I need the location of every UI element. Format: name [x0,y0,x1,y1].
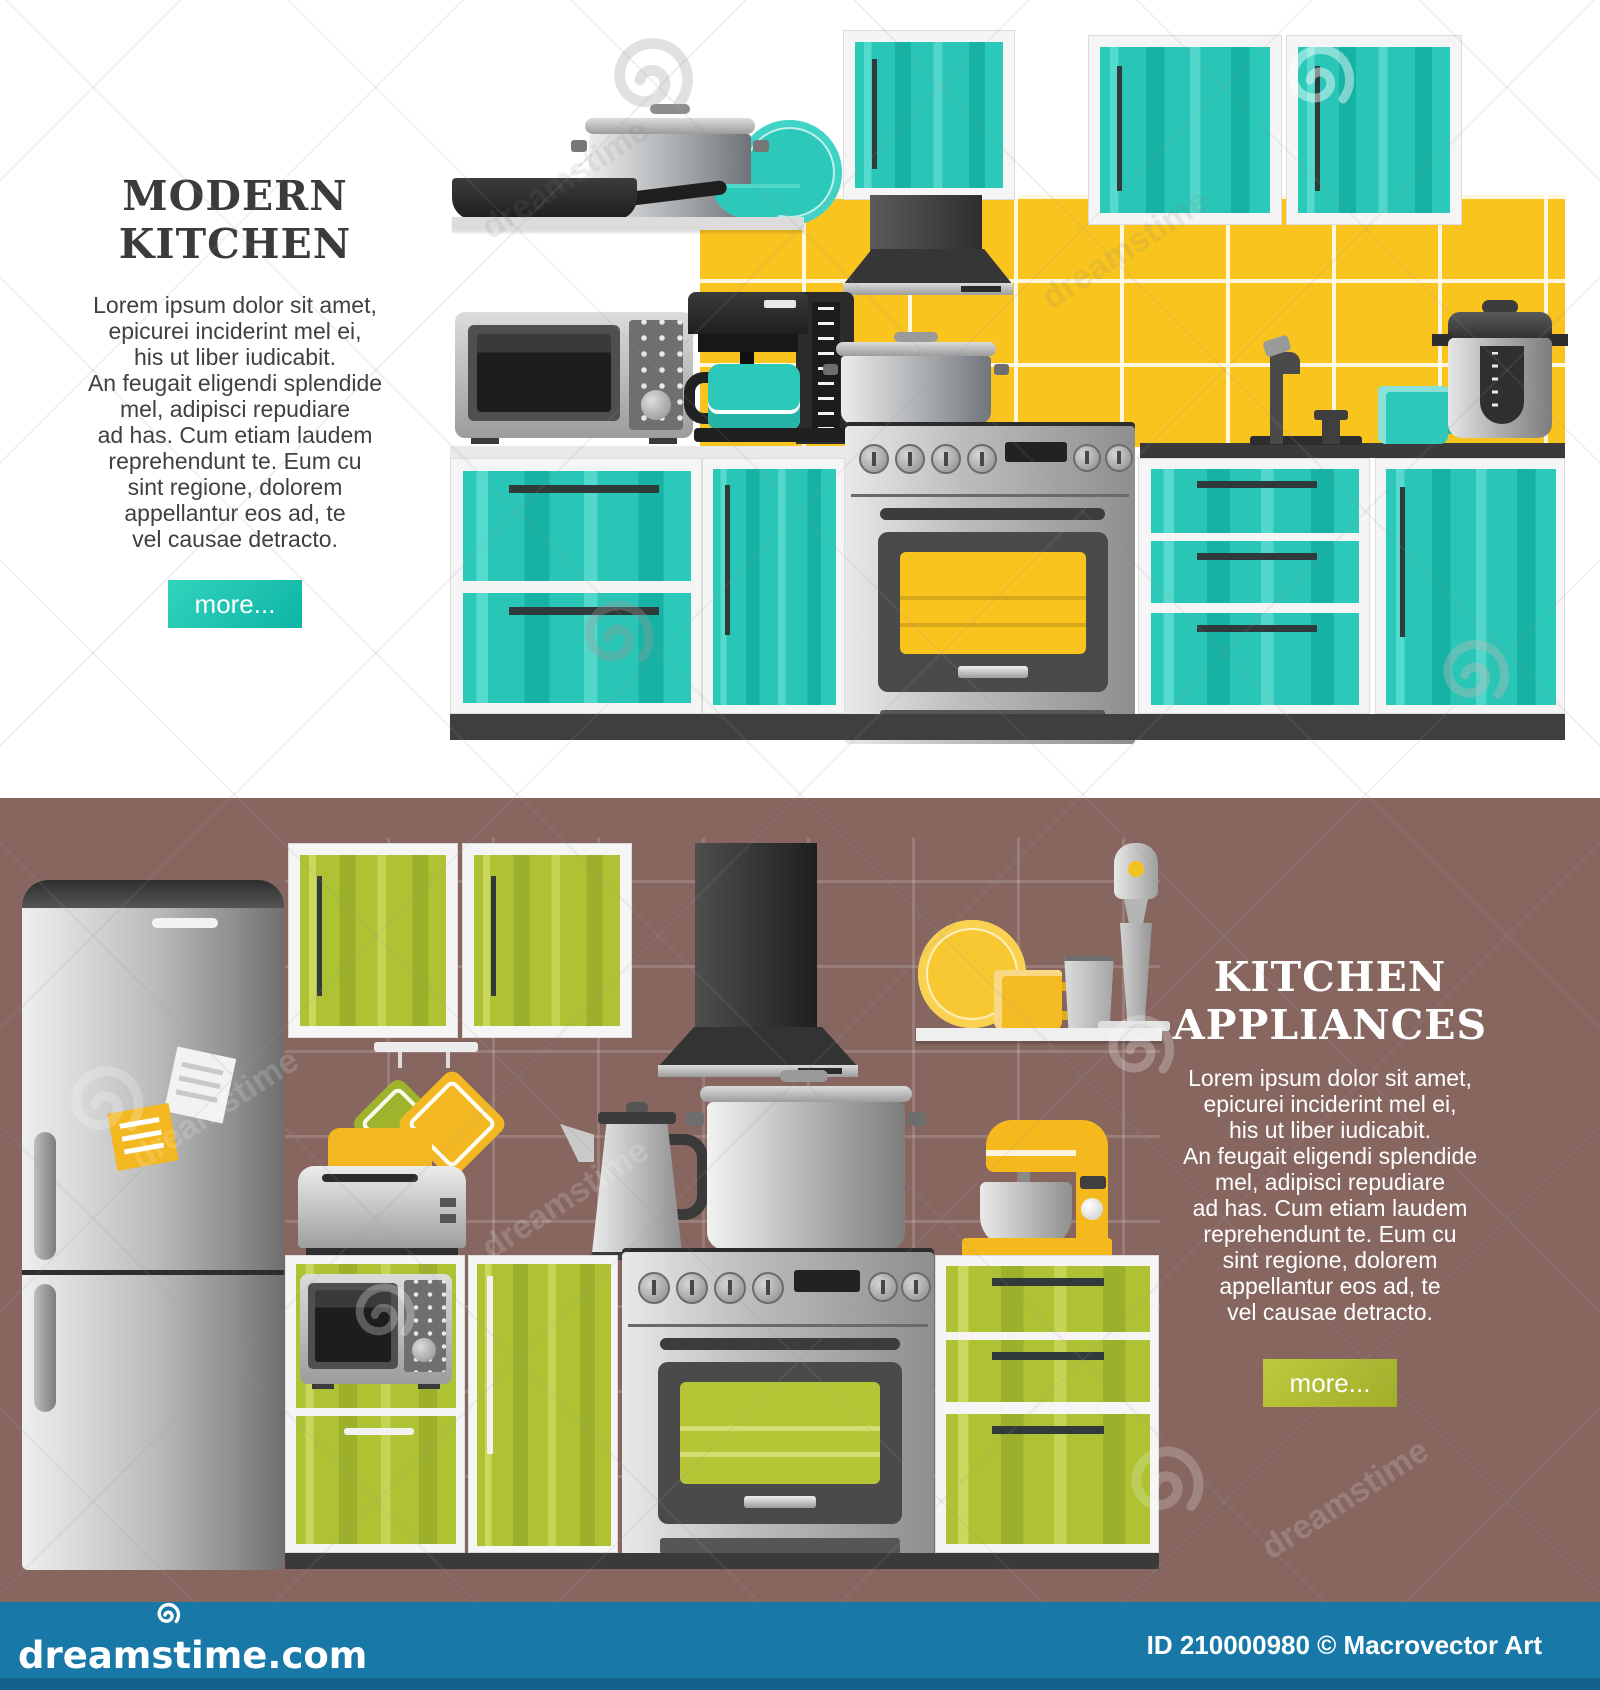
footer-bar-edge [0,1678,1600,1690]
stove-knob[interactable] [676,1272,708,1304]
coffee-drip [740,352,754,364]
hood-chimney [695,843,817,1029]
hood-flare [843,249,1013,285]
pot-lid-knob [780,1070,828,1082]
fridge-handle[interactable] [34,1132,56,1260]
pot-handle [823,364,838,375]
paragraph-line: appellantur eos ad, te [1120,1273,1540,1299]
pot-handle [994,364,1009,375]
tap-stem [1322,418,1340,444]
cooker-gauge [1480,346,1524,424]
faucet-pipe [1270,362,1283,444]
drawer-handle [1197,553,1317,560]
door-handle [487,1276,493,1454]
cabinet-door [713,469,836,705]
microwave-cabinet[interactable] [285,1255,465,1553]
modern-kitchen-illustration [0,0,1600,798]
microwave-window [477,334,611,412]
stove-knob[interactable] [901,1272,931,1302]
pot-on-stove-icon [700,1070,912,1252]
door-handle [1400,487,1405,637]
oven-door-handle [958,666,1028,678]
more-button-bottom[interactable]: more... [1263,1359,1397,1407]
door-handle [491,876,496,996]
mug-body [994,970,1062,1030]
paragraph-line: ad has. Cum etiam laudem [1120,1195,1540,1221]
drawer-handle [509,607,659,615]
pot-lid-knob [650,104,690,114]
wall-cabinet-green[interactable] [288,843,458,1038]
pan-body [452,178,637,220]
door-handle [725,485,730,635]
pot-lid-knob [894,332,938,342]
base-cabinet-door[interactable] [702,458,845,714]
stand-mixer-icon[interactable] [962,1120,1112,1258]
microwave-foot [471,438,499,444]
stove-knob[interactable] [868,1272,898,1302]
cabinet-door [1386,469,1556,705]
faucet-icon[interactable] [1262,352,1332,444]
drawer-front [1151,469,1359,533]
cabinet-door [477,1264,611,1546]
microwave-window [315,1290,391,1362]
plinth [450,714,1565,740]
refrigerator-icon[interactable] [22,880,284,1570]
hanging-rail [374,1042,478,1052]
bottom-banner-paragraph: Lorem ipsum dolor sit amet, epicurei inc… [1120,1065,1540,1325]
title-line: KITCHEN [1120,953,1540,1001]
coffee-label [764,300,796,308]
rail-hook [398,1052,402,1068]
pot-handle [686,1112,704,1126]
bottom-text-column: KITCHEN APPLIANCES Lorem ipsum dolor sit… [1120,953,1540,1407]
cabinet-door [855,42,1003,188]
stove-icon [845,422,1135,744]
wall-cabinet[interactable] [1088,35,1282,225]
stove-knob[interactable] [714,1272,746,1304]
stove-knob[interactable] [638,1272,670,1304]
blender-neck [1124,899,1148,923]
microwave-window-frame [468,325,620,421]
paragraph-line: mel, adipisci repudiare [1120,1169,1540,1195]
range-hood-icon [843,195,1013,297]
paragraph-line: vel causae detracto. [1120,1299,1540,1325]
stove-drawer[interactable] [660,1538,900,1554]
pot-on-stove-icon [836,332,996,424]
multicooker-icon [1440,300,1560,444]
kettle-spout [560,1124,594,1162]
base-cabinet-door-green[interactable] [468,1255,618,1553]
kettle-lid [598,1112,676,1124]
paragraph-line: Lorem ipsum dolor sit amet, [1120,1065,1540,1091]
microwave-knob[interactable] [641,390,671,420]
coffee-tank [688,292,808,334]
pot-handle [753,140,769,152]
stove-divider [851,494,1129,497]
cabinet-door [1298,47,1450,213]
wall-cabinet[interactable] [843,30,1015,200]
stove-icon [622,1248,934,1562]
stove-display [1005,442,1067,462]
toaster-slot [322,1174,418,1182]
hood-flare [658,1027,858,1067]
drawer-handle [344,1428,414,1435]
microwave-icon [300,1274,452,1390]
paragraph-line: sint regione, dolorem [1120,1247,1540,1273]
pot-handle [908,1112,926,1126]
carafe [708,364,800,430]
sink-countertop [1140,443,1565,458]
hood-buttons [961,286,1001,292]
mixer-switch[interactable] [1080,1176,1106,1189]
bottom-banner-title: KITCHEN APPLIANCES [1120,953,1540,1049]
base-cabinet-drawers[interactable] [450,458,702,714]
oven-window [900,552,1086,654]
stove-knob[interactable] [752,1272,784,1304]
stove-knob[interactable] [895,444,925,474]
mixer-knob[interactable] [1081,1198,1103,1220]
title-line: APPLIANCES [1120,1001,1540,1049]
rail-hook [446,1052,450,1068]
stock-image-page: MODERN KITCHEN Lorem ipsum dolor sit ame… [0,0,1600,1690]
countertop-left [450,446,845,458]
drawer-handle [992,1426,1104,1434]
blender-button[interactable] [1128,861,1144,877]
drawer-front [1151,541,1359,603]
oven-handle-bar[interactable] [880,508,1105,520]
microwave-foot [312,1384,334,1389]
pan-handle [627,180,728,206]
wall-cabinet-green[interactable] [462,843,632,1038]
paragraph-line: reprehendunt te. Eum cu [1120,1221,1540,1247]
fridge-note-yellow [107,1103,178,1171]
door-handle [1315,66,1320,191]
pot-body [841,356,991,424]
microwave-window-frame [308,1283,398,1369]
toaster-lever[interactable] [440,1214,456,1223]
sink-cabinet[interactable] [1138,458,1370,714]
oven-window [680,1382,880,1484]
stove-display [794,1270,860,1292]
oven-door-handle [744,1496,816,1508]
wall-cabinet[interactable] [1286,35,1462,225]
paragraph-line: An feugait eligendi splendide [1120,1143,1540,1169]
paragraph-line: epicurei inciderint mel ei, [1120,1091,1540,1117]
microwave-icon [455,312,693,444]
door-handle [317,876,322,996]
microwave-knob[interactable] [412,1338,436,1362]
drawer-handle [1197,625,1317,632]
fridge-body [22,880,284,1570]
hood-chimney [870,195,982,251]
door-handle [872,59,877,169]
stove-knob[interactable] [931,444,961,474]
pot-lid [585,118,755,134]
cabinet-door [1100,47,1270,213]
pot-lid [700,1086,912,1102]
drawer-handle [992,1352,1104,1360]
toaster-lever[interactable] [440,1198,456,1207]
mug-body [1378,386,1448,444]
faucet-spout [1270,352,1300,374]
drawer-handle [509,485,659,493]
stove-divider [628,1324,928,1327]
drawer-handle [1197,481,1317,488]
stove-knob[interactable] [1073,444,1101,472]
dreamstime-logo[interactable]: dreamstime.com [18,1634,367,1677]
wall-shelf [452,217,804,230]
pot-body [707,1102,905,1250]
stove-knob[interactable] [1105,444,1133,472]
oven-door[interactable] [878,532,1108,692]
coffee-base [694,428,852,442]
drawer-front [296,1416,456,1544]
oven-door[interactable] [658,1362,902,1524]
frying-pan-icon [452,172,742,220]
plinth [285,1553,1159,1569]
pot-handle [571,140,587,152]
fridge-top-cap [22,880,284,908]
microwave-foot [649,438,677,444]
banner-modern-kitchen: MODERN KITCHEN Lorem ipsum dolor sit ame… [0,0,1600,798]
base-cabinet-door[interactable] [1375,458,1565,714]
image-credit: ID 210000980 © Macrovector Art [1147,1630,1542,1661]
banner-kitchen-appliances: KITCHEN APPLIANCES Lorem ipsum dolor sit… [0,798,1600,1602]
oven-handle-bar[interactable] [660,1338,900,1350]
cooker-lid [1448,312,1552,338]
range-hood-icon [658,843,858,1081]
fridge-handle[interactable] [34,1284,56,1412]
door-handle [1117,66,1122,191]
paragraph-line: his ut liber iudicabit. [1120,1117,1540,1143]
dreamstime-spiral-icon [148,1598,182,1632]
drawer-handle [992,1278,1104,1286]
microwave-foot [418,1384,440,1389]
fridge-door-split [22,1270,284,1275]
coffee-filter [698,334,798,352]
fridge-vent [152,918,218,928]
stove-knob[interactable] [859,444,889,474]
toaster-icon[interactable] [298,1166,466,1258]
stove-knob[interactable] [967,444,997,474]
pot-lid [836,342,996,356]
